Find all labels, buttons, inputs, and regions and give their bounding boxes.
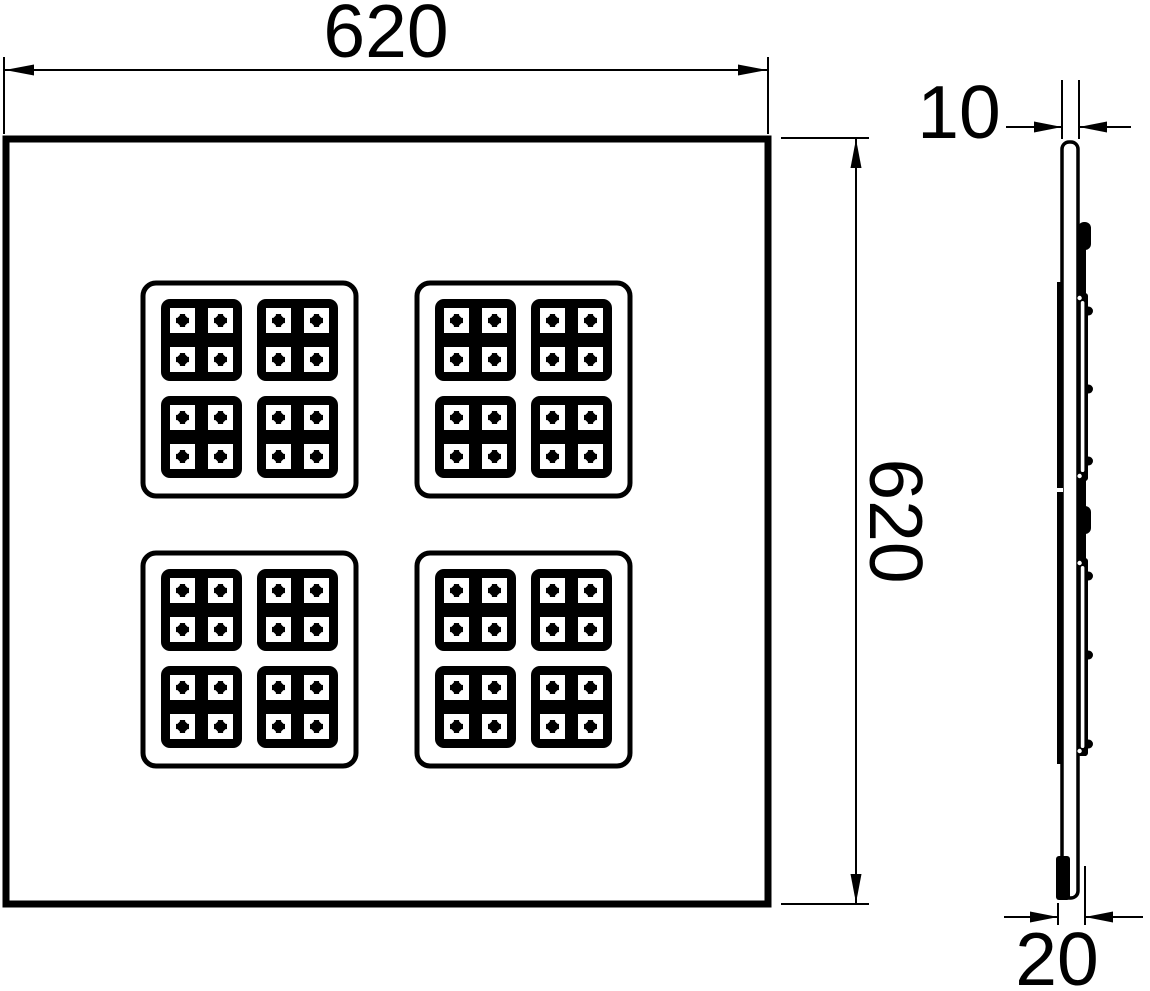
panel-thickness-label: 10 xyxy=(917,70,1000,154)
arrowhead-right xyxy=(738,65,767,76)
front-width-label: 620 xyxy=(323,0,448,73)
side-bottom-cap xyxy=(1056,856,1070,900)
mounting-depth-label: 20 xyxy=(1015,917,1098,991)
led-cluster-bottom-left xyxy=(143,553,356,766)
technical-drawing-canvas: 620 620 10 20 xyxy=(0,0,1150,991)
arrowhead-down xyxy=(851,874,862,903)
arrowhead-left xyxy=(1079,122,1107,133)
arrowhead-left xyxy=(5,65,34,76)
front-view xyxy=(6,139,768,904)
arrowhead-right xyxy=(1034,122,1062,133)
side-component-bump-upper xyxy=(1078,222,1091,250)
dimension-front-height: 620 xyxy=(781,138,938,904)
side-view xyxy=(1055,142,1093,900)
led-cluster-top-left xyxy=(143,283,356,496)
arrowhead-up xyxy=(851,139,862,168)
led-cluster-bottom-right xyxy=(417,553,630,766)
side-component-bump-middle xyxy=(1078,506,1091,534)
dimension-panel-thickness: 10 xyxy=(917,70,1131,154)
front-height-label: 620 xyxy=(854,458,938,583)
dimension-front-width: 620 xyxy=(4,0,768,134)
led-cluster-top-right xyxy=(417,283,630,496)
led-panel-drawing: 620 620 10 20 xyxy=(0,0,1150,991)
side-panel-slab xyxy=(1062,142,1078,898)
panel-outline xyxy=(6,139,768,904)
